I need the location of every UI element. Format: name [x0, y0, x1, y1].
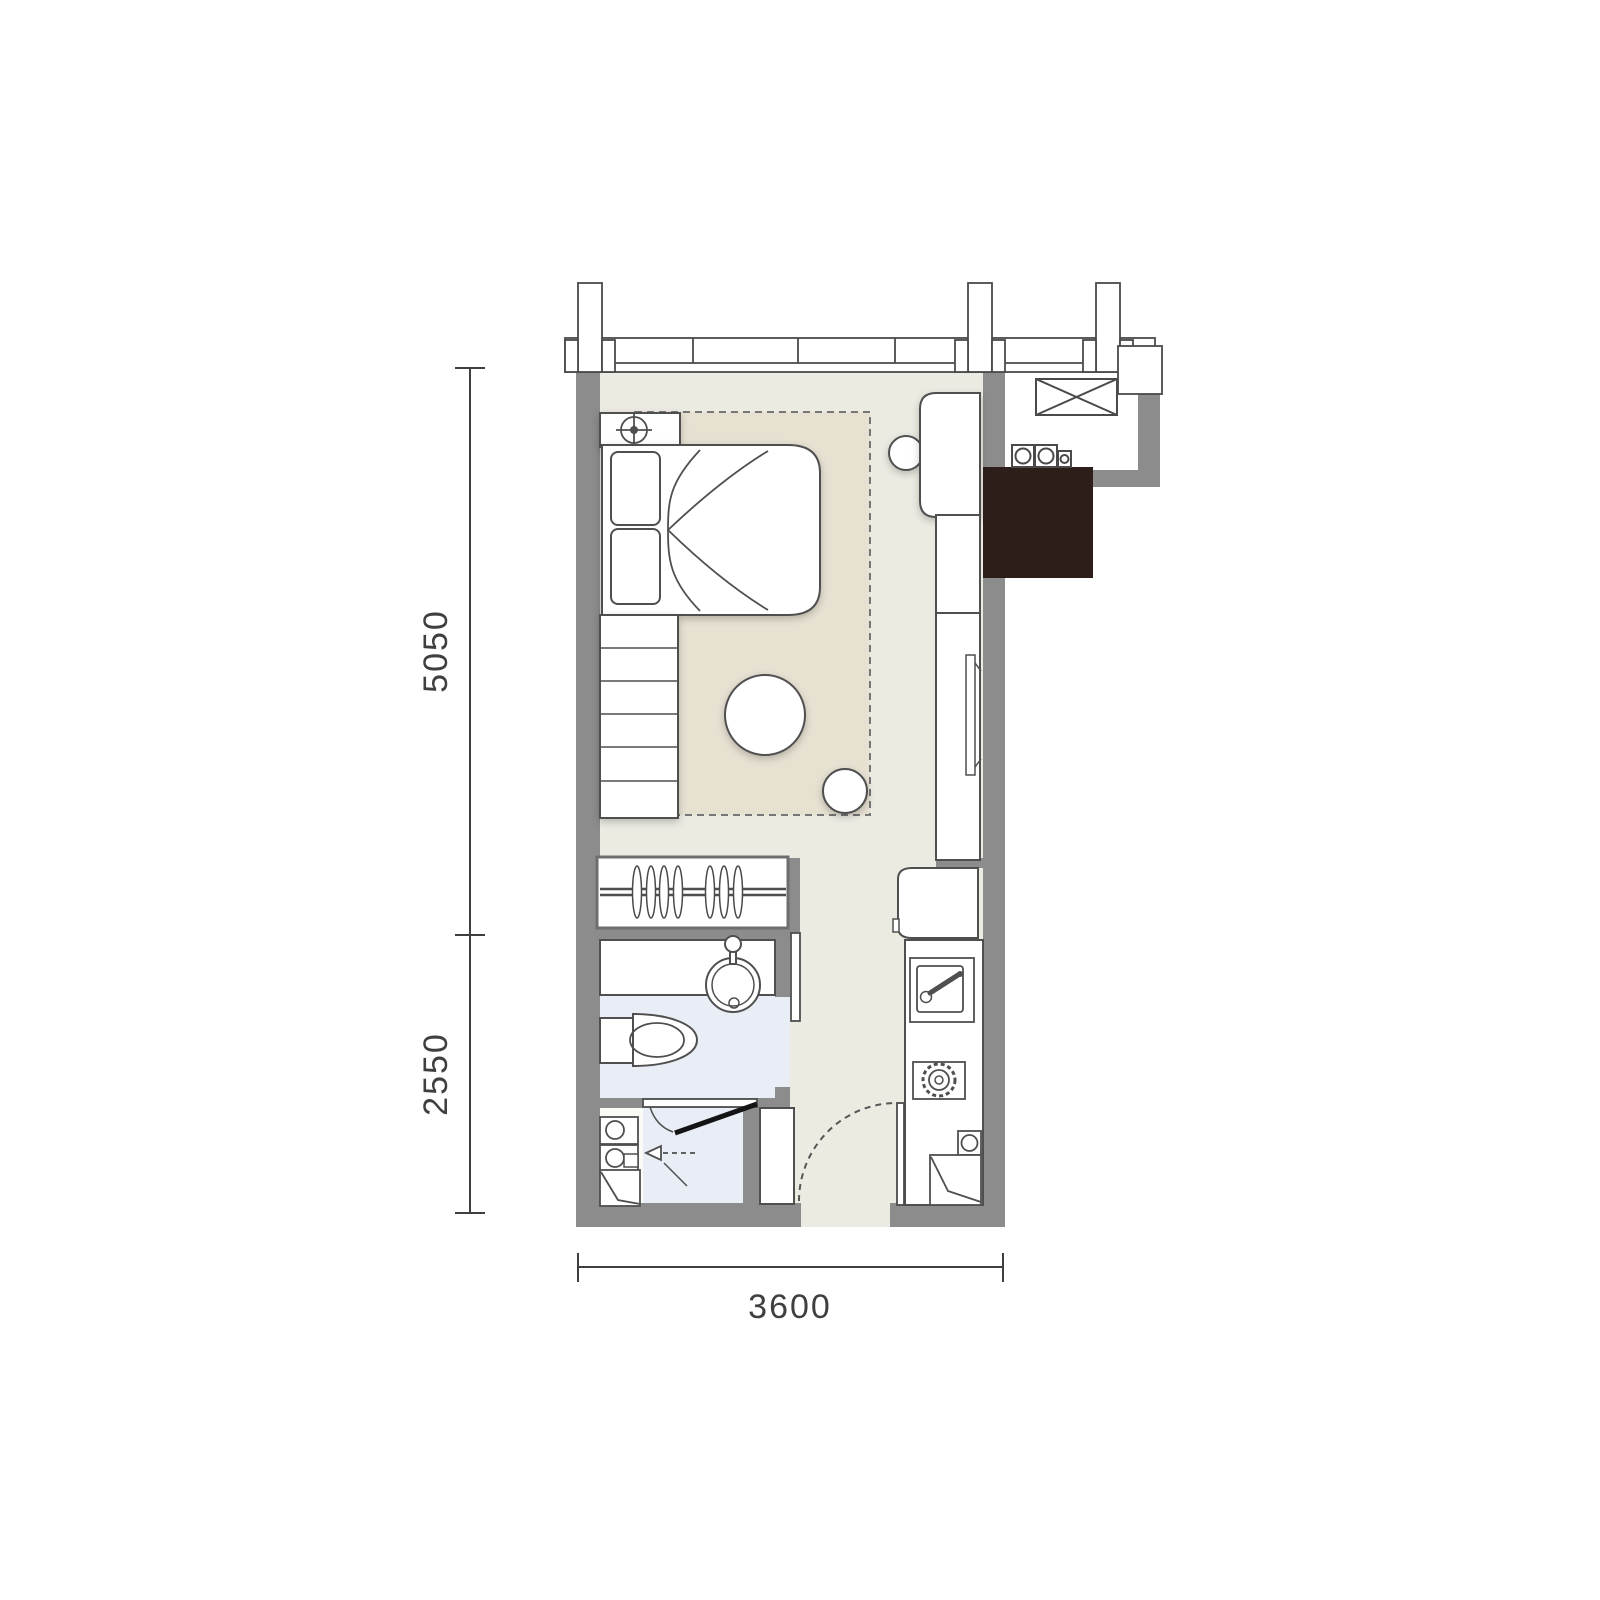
- shower-door-track: [643, 1099, 757, 1107]
- drawer-bench: [600, 615, 678, 818]
- sliding-door: [791, 933, 800, 1021]
- desk: [920, 393, 980, 517]
- column-end-cap: [1118, 346, 1162, 394]
- window-band: [565, 338, 1155, 372]
- column-icon: [1096, 283, 1120, 372]
- appliance-fold-icon: [930, 1155, 981, 1205]
- pillow: [611, 529, 660, 604]
- column-flange: [992, 340, 1005, 372]
- fridge: [898, 868, 978, 938]
- basin-icon: [706, 958, 760, 1012]
- dimension-label-5050: 5050: [417, 609, 455, 693]
- pillow: [611, 452, 660, 525]
- wall-right-upper: [983, 372, 1005, 468]
- toilet-tank: [600, 1018, 633, 1063]
- stool: [823, 769, 867, 813]
- column-icon: [968, 283, 992, 372]
- kitchen: [893, 868, 983, 1205]
- column-flange: [1083, 340, 1096, 372]
- wardrobe: [597, 857, 788, 928]
- round-table: [725, 675, 805, 755]
- wall-right-main: [983, 578, 1005, 1227]
- tv-icon: [966, 655, 975, 775]
- chair: [889, 436, 923, 470]
- wall-shower-right: [743, 1108, 760, 1205]
- column-flange: [955, 340, 968, 372]
- wall-platform-bottom: [1093, 470, 1160, 487]
- fridge-handle: [893, 919, 899, 932]
- cabinet: [936, 515, 980, 613]
- small-fixture: [624, 1154, 638, 1167]
- floor-plan-drawing: 5050 2550 3600: [0, 0, 1600, 1600]
- gas-stove-icon: [913, 1062, 965, 1099]
- wardrobe-body: [597, 857, 788, 928]
- entry-door-leaf: [897, 1103, 904, 1205]
- column-icon: [578, 283, 602, 372]
- entry-cabinet: [760, 1108, 794, 1204]
- dimension-label-3600: 3600: [748, 1288, 832, 1326]
- column-flange: [565, 340, 578, 372]
- column-flange: [602, 340, 615, 372]
- floor-plan-page: 5050 2550 3600: [0, 0, 1600, 1600]
- wall-bath-right: [775, 940, 790, 997]
- service-shaft: [983, 467, 1093, 578]
- dimension-label-2550: 2550: [417, 1032, 455, 1116]
